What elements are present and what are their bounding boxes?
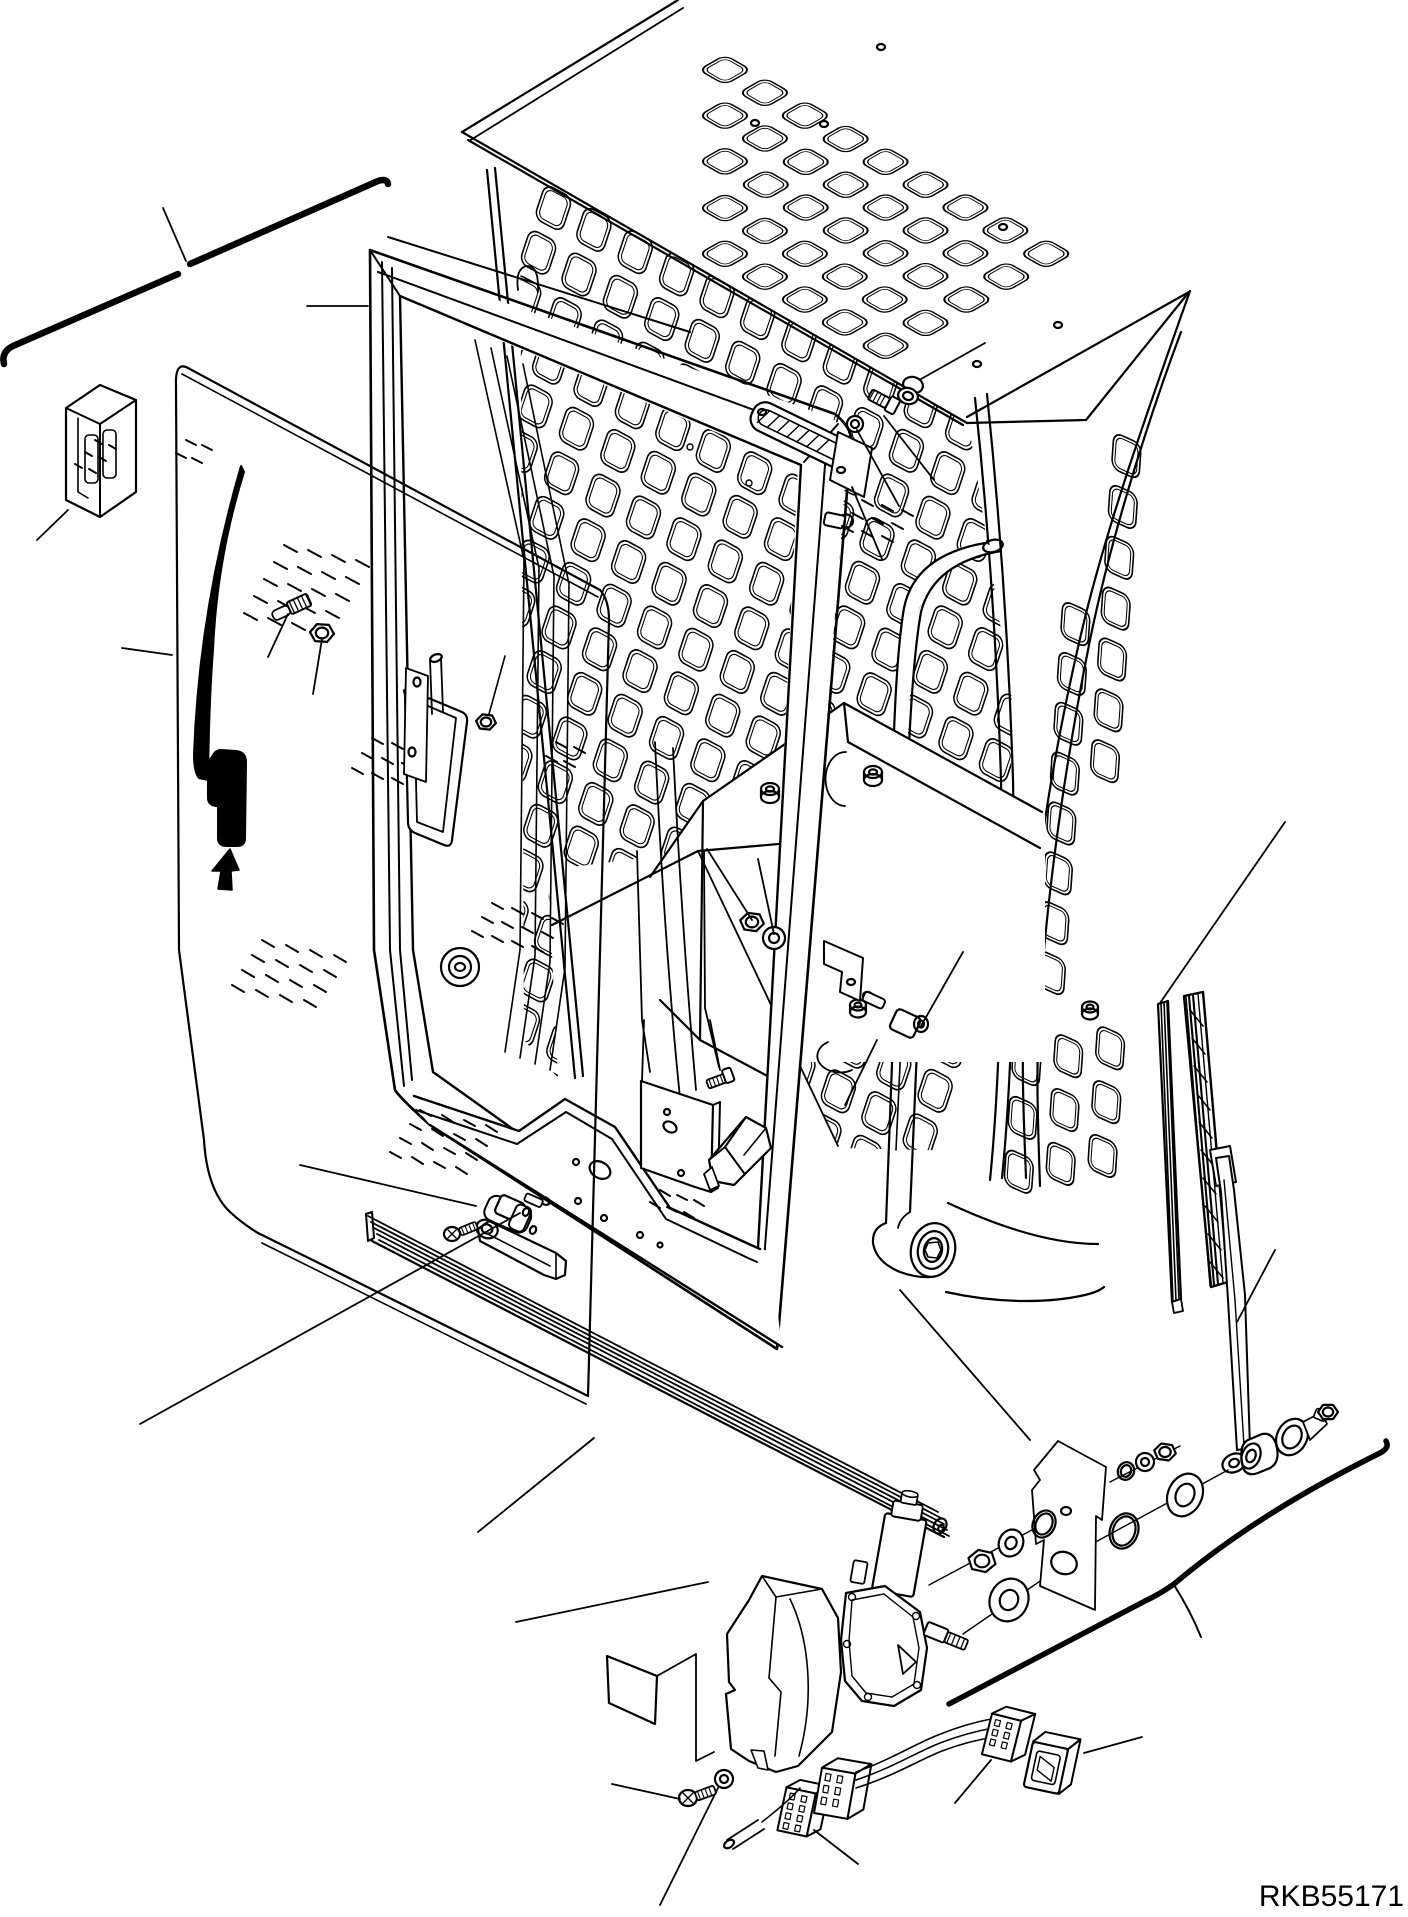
- svg-text:RKB55171: RKB55171: [1259, 1880, 1404, 1913]
